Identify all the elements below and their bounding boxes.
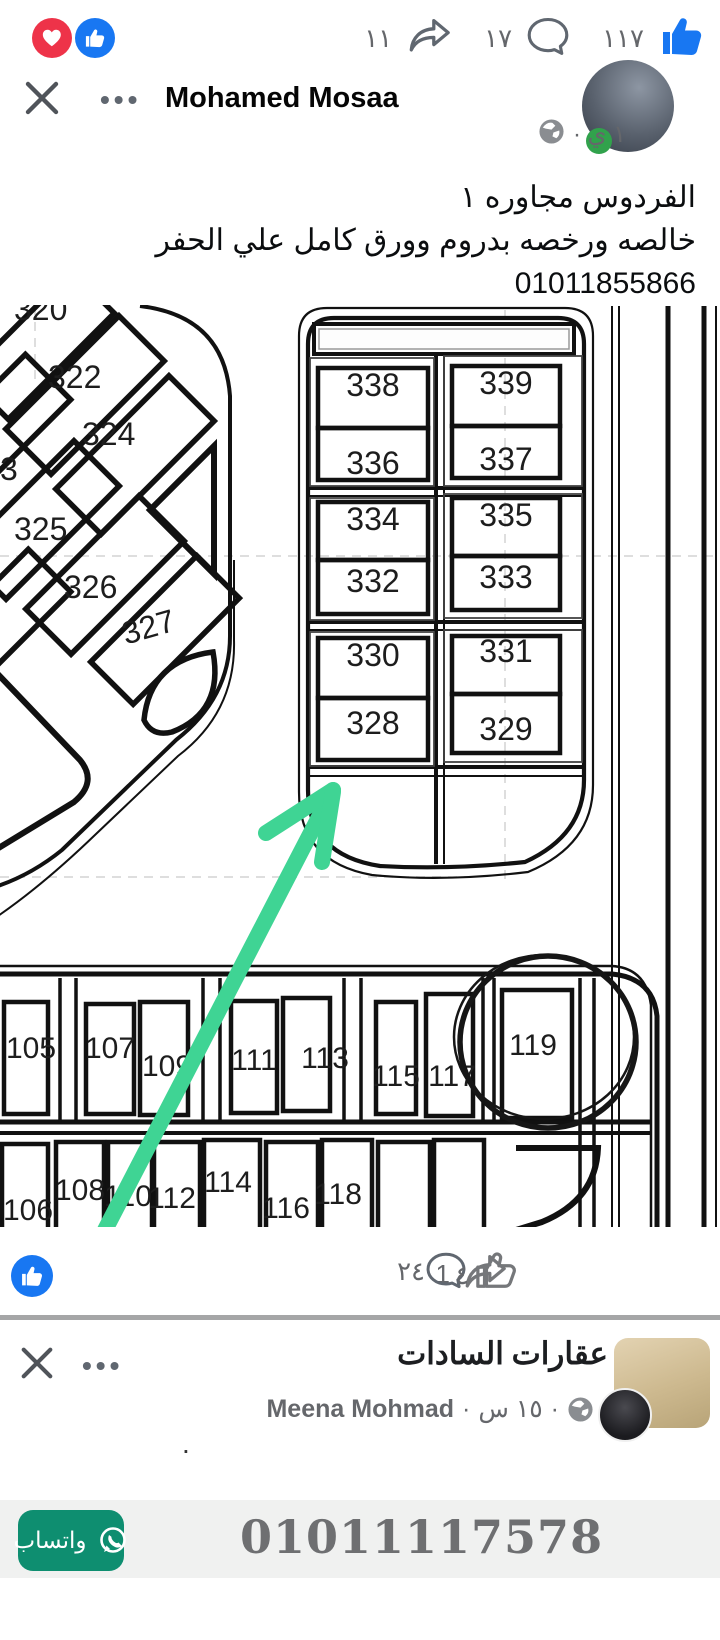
plot-label: 333 [479,559,532,595]
post-text-line: الفردوس مجاوره ١ [16,176,696,219]
comment-icon[interactable] [526,15,570,62]
post-text-line: خالصه ورخصه بدروم وورق كامل علي الحفر [16,219,696,262]
plot-label: 105 [6,1032,56,1065]
plot-label: 325 [14,511,67,547]
diamond-block [0,305,239,920]
like-icon[interactable] [474,1250,518,1297]
close-icon[interactable] [18,1344,56,1387]
plot-label: 116 [262,1192,310,1225]
post-text: الفردوس مجاوره ١ خالصه ورخصه بدروم وورق … [16,176,696,305]
reactions-overlay[interactable] [32,18,115,58]
plot-label: 119 [509,1029,557,1062]
plot-label: 115 [372,1060,420,1093]
plot-label: 324 [82,416,135,452]
plot-label: 108 [55,1174,105,1207]
post-menu-icon[interactable]: ••• [100,84,141,116]
whatsapp-button[interactable]: واتساب [18,1510,124,1571]
like-count: ٤ [455,1260,469,1291]
comment-icon[interactable] [425,1250,452,1295]
poster-name[interactable]: Meena Mohmad [266,1395,454,1424]
post-menu-icon[interactable]: ••• [82,1350,123,1382]
plot-label: 328 [346,705,399,741]
plot-label: 338 [346,367,399,403]
post-byline: Meena Mohmad · ١٥ س · [266,1394,594,1424]
whatsapp-icon [97,1525,129,1557]
plot-label: 330 [346,637,399,673]
plot-label: 322 [48,359,101,395]
plot-label: 332 [346,563,399,599]
plot-label: 3 [0,451,18,487]
close-icon[interactable] [22,78,62,123]
right-block [299,308,593,878]
plot-map-image[interactable]: 320 322 324 3 325 326 327 [0,305,720,1227]
share-icon[interactable] [406,16,452,61]
page-avatar[interactable] [614,1338,710,1428]
plot-label: 106 [3,1194,53,1227]
like-icon[interactable] [658,14,706,63]
plot-label: 331 [479,633,532,669]
top-action-bar: ١١ ١٧ ١١٧ [364,14,706,63]
globe-icon [567,1396,594,1423]
plot-label: 335 [479,497,532,533]
plot-label: 326 [64,569,117,605]
byline-separator: · [462,1395,470,1424]
plot-label: 113 [301,1042,349,1075]
post-body: . [182,1428,190,1460]
plot-label: 339 [479,365,532,401]
byline-separator: · [551,1395,559,1424]
post-author[interactable]: Mohamed Mosaa [165,82,399,115]
plot-label: 118 [314,1178,362,1211]
comment-count-wrap: ٢٤ [397,1256,425,1287]
plot-label: 111 [231,1044,277,1077]
post-divider [0,1315,720,1320]
page-name[interactable]: عقارات السادات [397,1336,608,1372]
plot-label: 336 [346,445,399,481]
comment-count: ١٧ [484,23,512,54]
post-timestamp: ١٥ س [478,1394,542,1424]
share-count: ١١ [364,23,392,54]
plot-label: 334 [346,501,399,537]
plot-label: 114 [204,1166,252,1199]
like-count: ١١٧ [602,23,644,54]
profile-avatar-overlay [598,1388,652,1442]
plot-label: 337 [479,441,532,477]
love-reaction-icon [32,18,72,58]
plot-label: 329 [479,711,532,747]
plot-label: 327 [118,602,179,651]
like-reaction-icon [75,18,115,58]
contact-phone: 01011117578 [240,1510,520,1564]
plot-label: 112 [148,1182,196,1215]
plot-label: 320 [14,305,67,327]
my-like-badge[interactable] [11,1255,53,1297]
whatsapp-button-label: واتساب [13,1527,86,1554]
globe-icon [538,118,565,150]
road-lines [612,306,716,1227]
plot-label: 107 [85,1032,135,1065]
screen: ١١ ١٧ ١١٧ ••• Mohamed Mosaa ١ ي · الفردو… [0,0,720,1640]
comment-count: ٢٤ [397,1256,425,1286]
post-phone: 01011855866 [16,262,696,305]
post-timestamp: ١ ي · [566,120,626,149]
